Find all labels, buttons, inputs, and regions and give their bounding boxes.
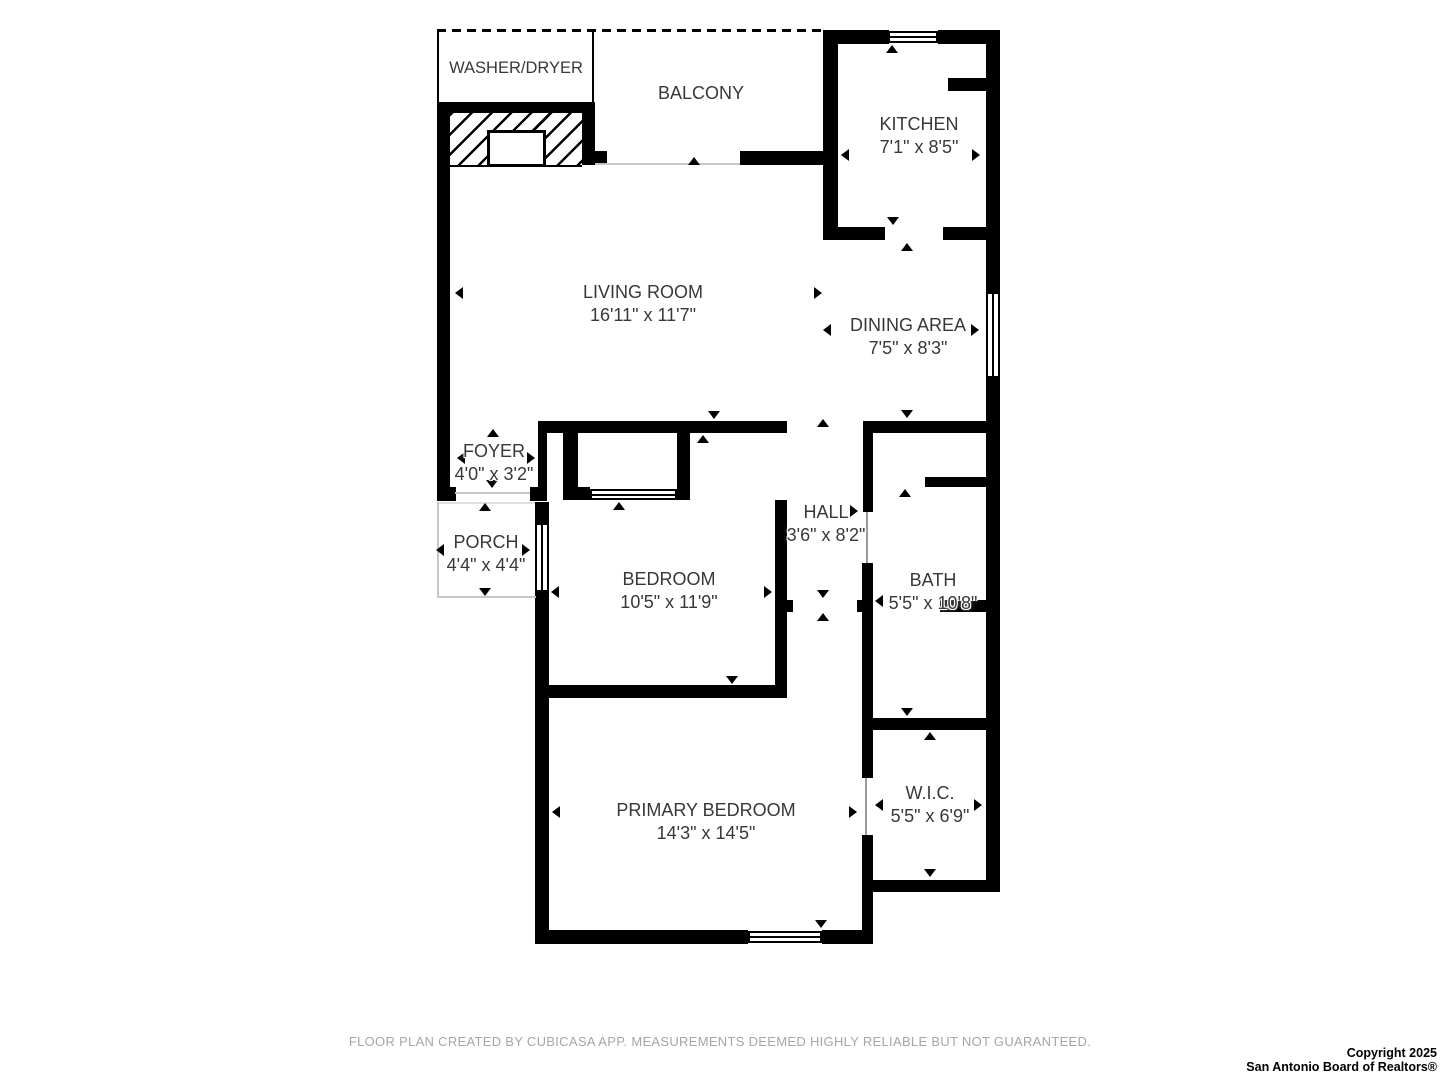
wall xyxy=(986,44,1000,78)
wall xyxy=(535,502,549,523)
wall xyxy=(925,477,986,487)
arrow-marker-up xyxy=(688,157,700,165)
wall xyxy=(437,487,456,501)
room-name: PORCH xyxy=(447,531,526,554)
room-label-hall: HALL 3'6" x 8'2" xyxy=(787,501,866,547)
wall xyxy=(862,563,873,778)
wall xyxy=(536,685,787,698)
room-name: DINING AREA xyxy=(850,314,966,337)
room-label-primary-bedroom: PRIMARY BEDROOM 14'3" x 14'5" xyxy=(616,799,795,845)
arrow-marker-left xyxy=(551,586,559,598)
wall xyxy=(823,227,885,240)
arrow-marker-down xyxy=(479,588,491,596)
arrow-marker-up xyxy=(924,732,936,740)
wic-door-line xyxy=(865,778,867,835)
arrow-marker-up xyxy=(479,503,491,511)
room-name: HALL xyxy=(787,501,866,524)
arrow-marker-right xyxy=(764,586,772,598)
room-name: KITCHEN xyxy=(879,113,958,136)
room-label-balcony: BALCONY xyxy=(658,82,744,105)
room-dimensions: 5'5" x 10'8" xyxy=(889,592,978,615)
arrow-marker-down xyxy=(815,920,827,928)
room-name: LIVING ROOM xyxy=(583,281,703,304)
arrow-marker-up xyxy=(487,429,499,437)
arrow-marker-left xyxy=(455,287,463,299)
arrow-marker-up xyxy=(697,435,709,443)
wall xyxy=(538,421,547,492)
room-dimensions: 10'5" x 11'9" xyxy=(620,591,717,614)
wall xyxy=(943,227,1000,240)
room-label-bath: BATH 5'5" x 10'8" xyxy=(889,569,978,615)
wall xyxy=(740,151,824,165)
arrow-marker-down xyxy=(817,590,829,598)
wall xyxy=(535,930,748,944)
arrow-marker-down xyxy=(901,410,913,418)
arrow-marker-right xyxy=(971,324,979,336)
room-dimensions: 7'5" x 8'3" xyxy=(850,337,966,360)
arrow-marker-left xyxy=(436,544,444,556)
room-label-dining-area: DINING AREA 7'5" x 8'3" xyxy=(850,314,966,360)
room-label-washer-dryer: WASHER/DRYER xyxy=(449,57,583,80)
arrow-marker-left xyxy=(875,595,883,607)
wall xyxy=(582,113,595,165)
room-name: BATH xyxy=(889,569,978,592)
wall xyxy=(775,600,793,612)
window xyxy=(888,31,938,43)
arrow-marker-up xyxy=(613,502,625,510)
wall xyxy=(437,102,595,113)
arrow-marker-down xyxy=(901,708,913,716)
wall xyxy=(563,487,590,500)
wall xyxy=(437,110,450,487)
wall xyxy=(863,421,873,512)
arrow-marker-up xyxy=(899,489,911,497)
arrow-marker-up xyxy=(886,45,898,53)
wall xyxy=(677,433,690,490)
window xyxy=(748,931,822,943)
wall xyxy=(823,30,838,240)
wall xyxy=(563,433,578,492)
room-dimensions: 16'11" x 11'7" xyxy=(583,304,703,327)
balcony-dashed-boundary xyxy=(437,29,824,32)
arrow-marker-left xyxy=(841,149,849,161)
disclaimer-text: FLOOR PLAN CREATED BY CUBICASA APP. MEAS… xyxy=(0,1034,1440,1049)
room-dimensions: 3'6" x 8'2" xyxy=(787,524,866,547)
floor-plan-page: WASHER/DRYER BALCONY KITCHEN 7'1" x 8'5"… xyxy=(0,0,1440,1080)
arrow-marker-left xyxy=(552,806,560,818)
window xyxy=(986,292,1000,378)
bath-door-line xyxy=(866,512,868,563)
wall xyxy=(535,592,549,930)
room-name: WASHER/DRYER xyxy=(449,57,583,80)
wall xyxy=(592,30,594,102)
wall xyxy=(986,378,1000,892)
room-label-porch: PORCH 4'4" x 4'4" xyxy=(447,531,526,577)
room-label-kitchen: KITCHEN 7'1" x 8'5" xyxy=(879,113,958,159)
copyright-line1: Copyright 2025 xyxy=(1246,1046,1437,1060)
arrow-marker-right xyxy=(849,806,857,818)
arrow-marker-down xyxy=(708,411,720,419)
wall xyxy=(538,421,787,433)
porch-outline xyxy=(437,596,536,598)
front-door-line xyxy=(455,492,530,494)
wall xyxy=(530,487,547,501)
room-label-wic: W.I.C. 5'5" x 6'9" xyxy=(891,782,970,828)
wall xyxy=(873,718,1000,730)
room-label-bedroom: BEDROOM 10'5" x 11'9" xyxy=(620,568,717,614)
arrow-marker-right xyxy=(972,149,980,161)
room-label-living-room: LIVING ROOM 16'11" x 11'7" xyxy=(583,281,703,327)
arrow-marker-left xyxy=(823,324,831,336)
room-dimensions: 7'1" x 8'5" xyxy=(879,136,958,159)
wall xyxy=(822,930,873,944)
room-name: BALCONY xyxy=(658,82,744,105)
room-name: FOYER xyxy=(455,440,534,463)
room-dimensions: 5'5" x 6'9" xyxy=(891,805,970,828)
room-dimensions: 4'0" x 3'2" xyxy=(455,463,534,486)
arrow-marker-down xyxy=(887,217,899,225)
arrow-marker-down xyxy=(726,676,738,684)
arrow-marker-up xyxy=(817,613,829,621)
wall xyxy=(437,30,439,102)
arrow-marker-right xyxy=(974,799,982,811)
window xyxy=(535,523,549,592)
wall xyxy=(862,880,1000,892)
arrow-marker-left xyxy=(875,799,883,811)
wall xyxy=(986,90,1000,292)
room-name: W.I.C. xyxy=(891,782,970,805)
closet-sliding-door xyxy=(590,489,677,500)
wall xyxy=(938,30,1000,44)
arrow-marker-down xyxy=(924,869,936,877)
fireplace-box xyxy=(487,130,546,167)
copyright-line2: San Antonio Board of Realtors® xyxy=(1246,1060,1437,1074)
balcony-slider-line xyxy=(595,163,740,165)
arrow-marker-up xyxy=(817,419,829,427)
copyright-notice: Copyright 2025 San Antonio Board of Real… xyxy=(1246,1046,1437,1074)
room-name: BEDROOM xyxy=(620,568,717,591)
room-dimensions: 14'3" x 14'5" xyxy=(616,822,795,845)
room-label-foyer: FOYER 4'0" x 3'2" xyxy=(455,440,534,486)
room-name: PRIMARY BEDROOM xyxy=(616,799,795,822)
arrow-marker-right xyxy=(814,287,822,299)
wall xyxy=(775,500,787,698)
wall xyxy=(863,421,1000,433)
arrow-marker-up xyxy=(901,243,913,251)
room-dimensions: 4'4" x 4'4" xyxy=(447,554,526,577)
